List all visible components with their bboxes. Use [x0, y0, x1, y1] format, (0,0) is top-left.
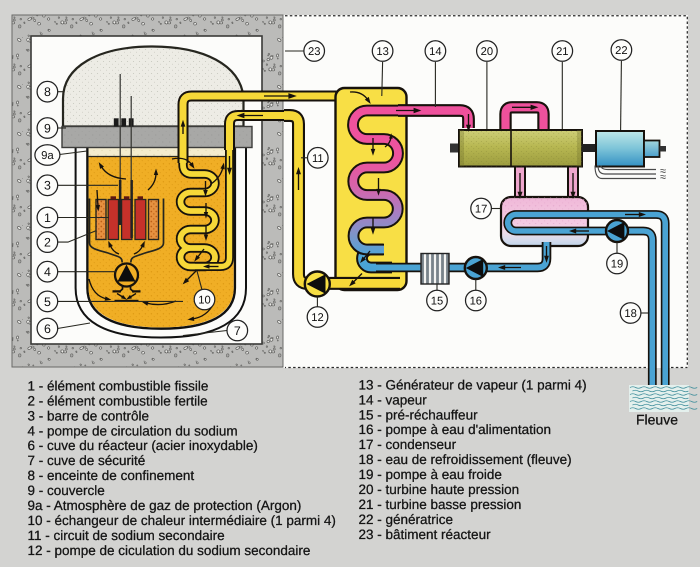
svg-text:13 - Générateur de vapeur (1 p: 13 - Générateur de vapeur (1 parmi 4): [359, 377, 587, 392]
svg-text:10 - échangeur de chaleur inte: 10 - échangeur de chaleur intermédiaire …: [28, 513, 336, 528]
svg-text:15: 15: [431, 296, 443, 308]
svg-text:8 - enceinte de confinement: 8 - enceinte de confinement: [28, 468, 195, 483]
svg-text:16 - pompe à eau d'alimentatio: 16 - pompe à eau d'alimentation: [359, 422, 551, 437]
svg-text:4: 4: [44, 265, 51, 279]
svg-text:20: 20: [481, 46, 493, 58]
svg-text:21 - turbine basse pression: 21 - turbine basse pression: [359, 497, 522, 512]
svg-text:9a: 9a: [41, 150, 54, 162]
svg-text:3 - barre de contrôle: 3 - barre de contrôle: [28, 408, 150, 423]
svg-text:23: 23: [308, 46, 320, 58]
svg-text:14: 14: [429, 46, 441, 58]
svg-text:22 - génératrice: 22 - génératrice: [359, 512, 454, 527]
svg-text:7: 7: [234, 324, 241, 338]
svg-text:15 - pré-réchauffeur: 15 - pré-réchauffeur: [359, 407, 479, 422]
svg-text:6 - cuve du réacteur (acier in: 6 - cuve du réacteur (acier inoxydable): [28, 438, 258, 453]
svg-text:7 - cuve de sécurité: 7 - cuve de sécurité: [28, 453, 146, 468]
svg-text:8: 8: [44, 85, 51, 99]
svg-text:6: 6: [44, 322, 51, 336]
svg-text:1: 1: [44, 211, 51, 225]
svg-text:2: 2: [44, 236, 51, 250]
svg-text:13: 13: [376, 46, 388, 58]
svg-text:2 - élément combustible fertil: 2 - élément combustible fertile: [28, 393, 208, 408]
svg-text:23 - bâtiment réacteur: 23 - bâtiment réacteur: [359, 527, 492, 542]
svg-text:17: 17: [475, 204, 487, 216]
svg-text:18 - eau de refroidissement (f: 18 - eau de refroidissement (fleuve): [359, 452, 572, 467]
svg-text:22: 22: [615, 45, 627, 57]
svg-text:16: 16: [470, 296, 482, 308]
svg-text:19 - pompe à eau froide: 19 - pompe à eau froide: [359, 467, 502, 482]
svg-text:11 - circuit de sodium seconda: 11 - circuit de sodium secondaire: [28, 528, 225, 543]
svg-text:12: 12: [311, 312, 323, 324]
svg-text:11: 11: [312, 153, 324, 165]
svg-text:1 - élément combustible fissil: 1 - élément combustible fissile: [28, 378, 209, 393]
svg-text:≈: ≈: [660, 172, 666, 184]
svg-text:9: 9: [44, 121, 51, 135]
svg-text:Fleuve: Fleuve: [636, 412, 678, 428]
svg-text:4 - pompe de circulation du so: 4 - pompe de circulation du sodium: [28, 423, 238, 438]
svg-text:19: 19: [611, 259, 623, 271]
svg-text:5: 5: [44, 295, 51, 309]
svg-text:21: 21: [556, 46, 568, 58]
svg-text:17 - condenseur: 17 - condenseur: [359, 437, 457, 452]
svg-text:18: 18: [624, 308, 636, 320]
svg-text:12 - pompe de ciculation du so: 12 - pompe de ciculation du sodium secon…: [28, 543, 311, 558]
svg-text:3: 3: [44, 179, 51, 193]
svg-text:14 - vapeur: 14 - vapeur: [359, 392, 428, 407]
svg-text:9a - Atmosphère de gaz de prot: 9a - Atmosphère de gaz de protection (Ar…: [28, 498, 302, 513]
svg-text:10: 10: [198, 295, 210, 307]
svg-text:20 - turbine haute pression: 20 - turbine haute pression: [359, 482, 520, 497]
svg-text:9 - couvercle: 9 - couvercle: [28, 483, 105, 498]
